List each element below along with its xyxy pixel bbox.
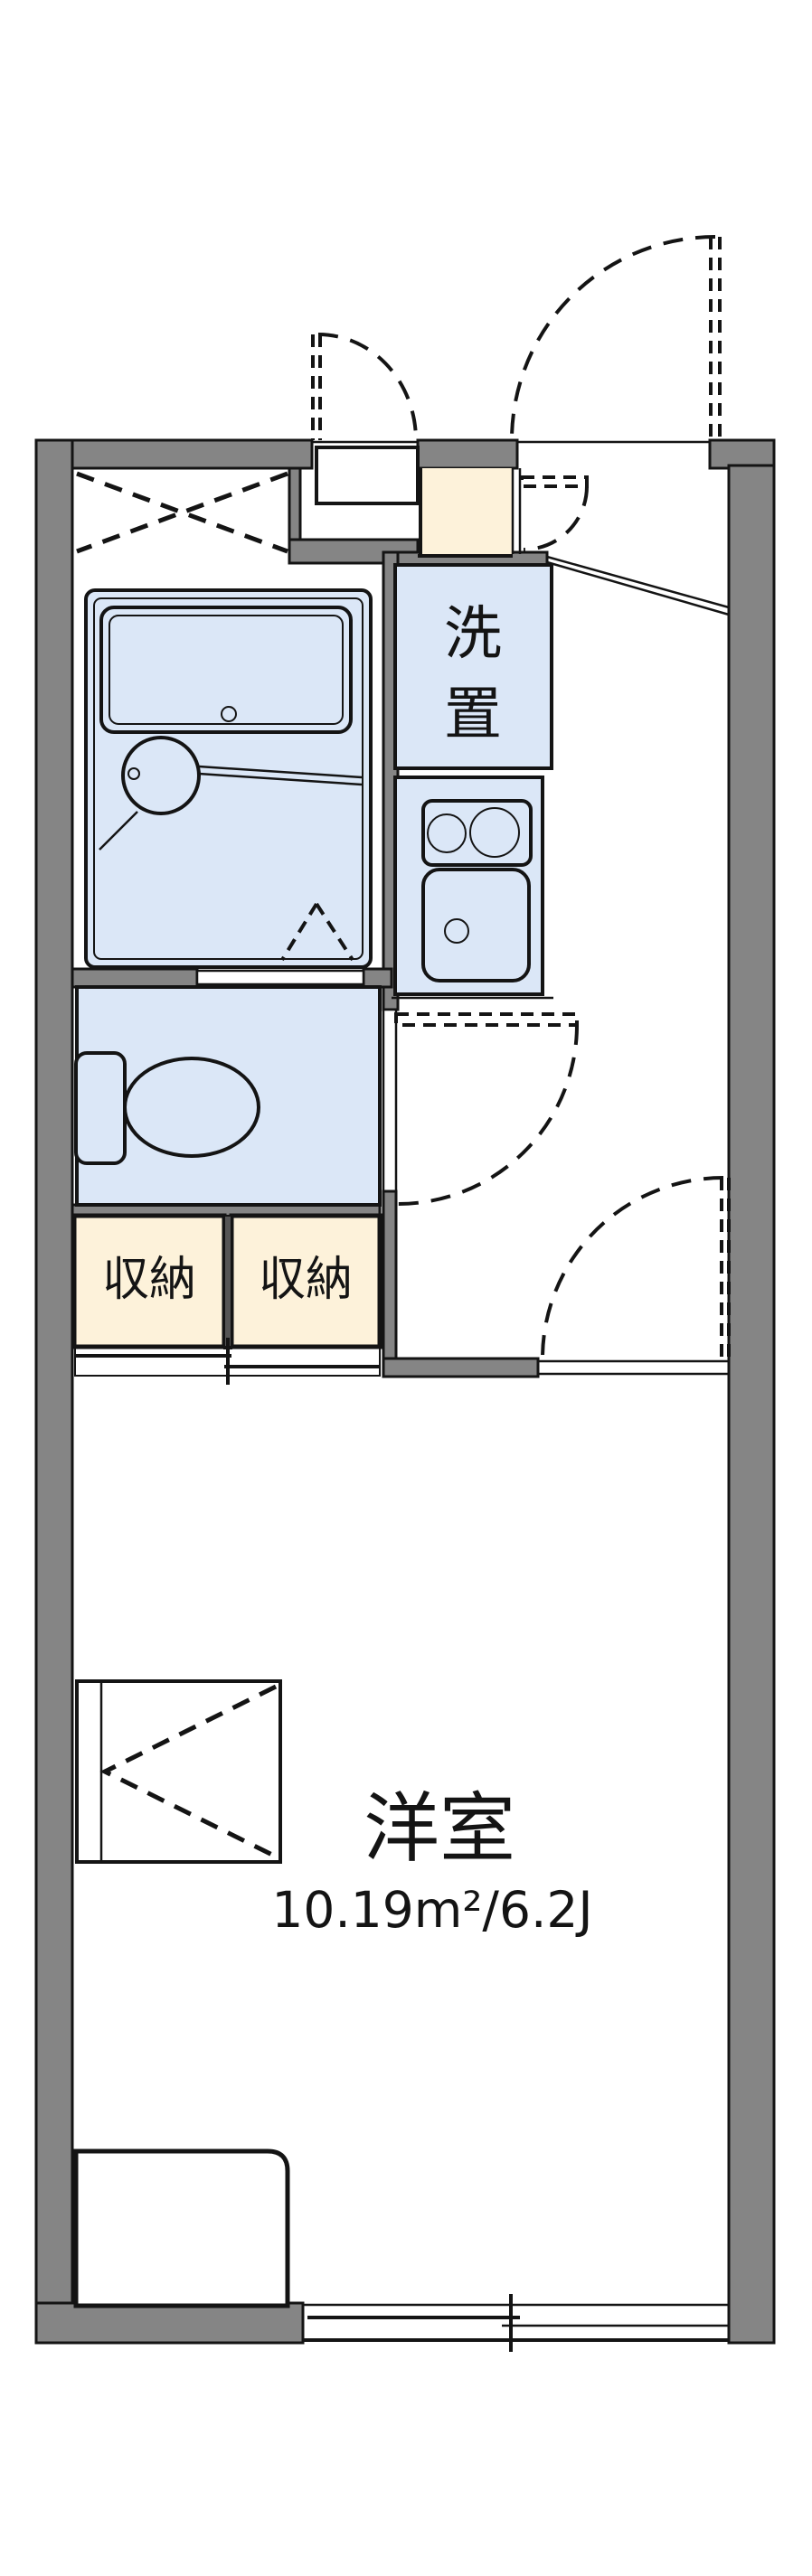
wall-bath-toilet-right — [364, 969, 392, 987]
wall-right — [729, 465, 774, 2343]
storage-closets: 収納 収納 — [74, 1216, 380, 1385]
pipe-space-box — [316, 447, 418, 503]
left-window-unit — [77, 1681, 280, 1862]
storage-divider-wall — [224, 1216, 231, 1349]
wall-mid-vertical-lower — [383, 1191, 396, 1377]
genkan-floor — [422, 468, 513, 554]
wall-toilet-door-panel — [383, 1010, 396, 1191]
shoe-cabinet-door-leaf — [522, 477, 587, 486]
wall-left — [36, 440, 72, 2343]
toilet-bowl — [125, 1058, 259, 1156]
kitchen — [392, 777, 553, 998]
kitchen-sink — [423, 870, 529, 981]
shoe-cabinet-door-arc — [524, 486, 587, 550]
entry-step-line-2 — [547, 562, 729, 615]
stove-top — [423, 801, 531, 865]
entry-step-line-1 — [547, 557, 729, 607]
wall-bath-toilet-left — [72, 969, 197, 987]
toilet-door-leaf — [396, 1014, 577, 1025]
wall-top-right — [710, 440, 774, 468]
room-name-label: 洋室 — [364, 1784, 515, 1873]
entrance-door — [512, 237, 720, 440]
toilet-tank — [76, 1053, 125, 1163]
bed — [76, 2151, 288, 2306]
room-door-swing-arc — [543, 1178, 723, 1359]
washer-label-line1: 洗 — [444, 601, 502, 668]
wall-ps-nook-vertical — [289, 468, 300, 544]
bathroom — [86, 590, 371, 967]
entrance-door-swing-arc — [512, 237, 715, 440]
storage-right-label: 収納 — [259, 1253, 353, 1307]
storage-left-label: 収納 — [102, 1253, 196, 1307]
floorplan-page: 収納 収納 洗 置 — [0, 0, 812, 2576]
loft-x-mark — [77, 474, 288, 551]
bathtub — [101, 607, 351, 732]
washer-label-line2: 置 — [444, 682, 502, 748]
service-door-swing-arc — [318, 334, 416, 440]
wall-top-middle — [418, 440, 517, 468]
bath-doorway-threshold — [197, 971, 364, 984]
room-area-label: 10.19m²/6.2J — [271, 1881, 592, 1939]
toilet-door-swing-arc — [398, 1025, 577, 1204]
bottom-window — [303, 2294, 729, 2352]
toilet-room — [76, 987, 577, 1205]
floorplan-drawing: 収納 収納 洗 置 — [0, 0, 812, 2576]
service-door — [313, 334, 416, 440]
wall-top-left — [36, 440, 312, 468]
washbasin — [123, 738, 199, 813]
wall-bottom-left — [36, 2303, 303, 2343]
wall-corridor — [383, 1359, 538, 1377]
washing-machine-area: 洗 置 — [395, 565, 552, 768]
